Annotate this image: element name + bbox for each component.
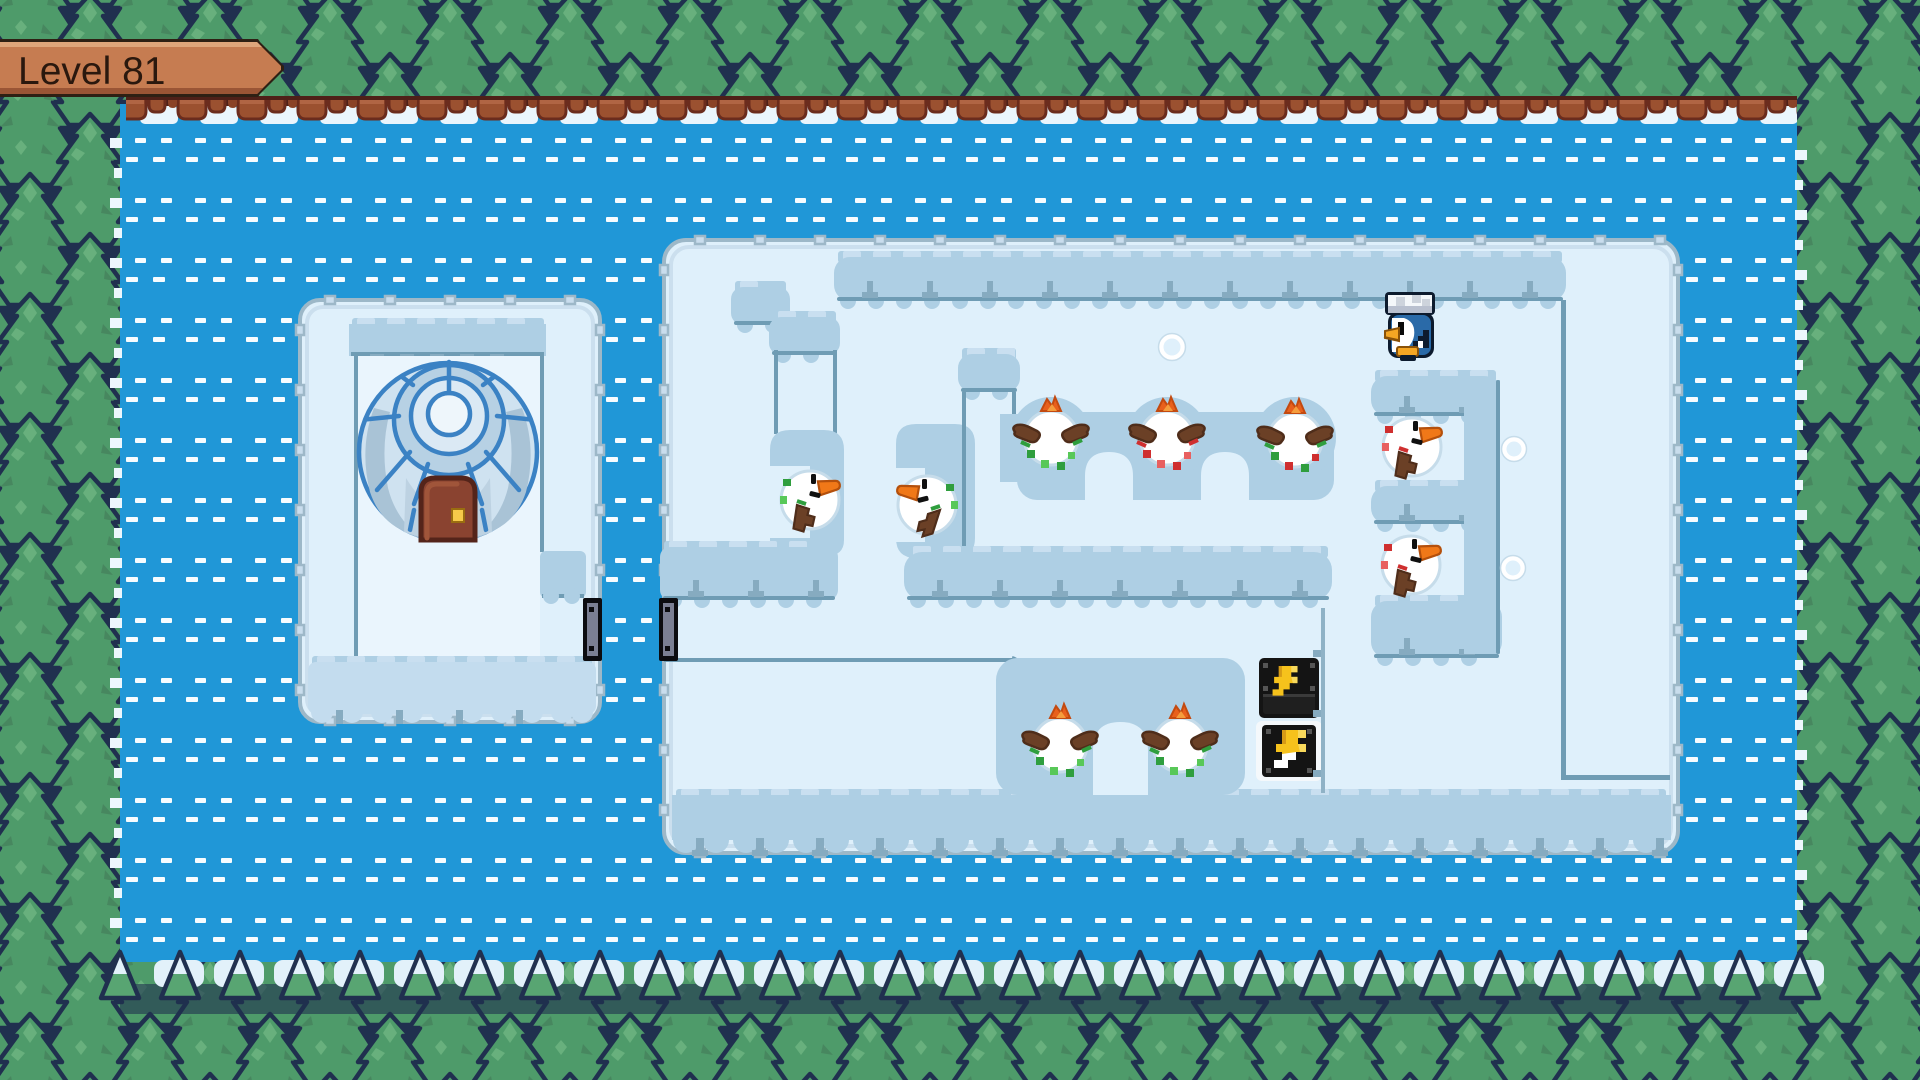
svg-text:Level 81: Level 81 xyxy=(18,50,165,93)
